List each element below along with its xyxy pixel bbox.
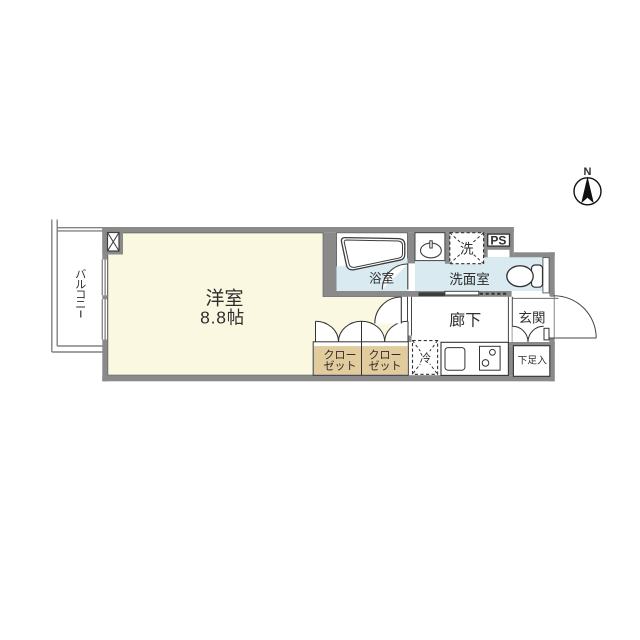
svg-text:ゼット: ゼット <box>324 360 357 373</box>
svg-text:下足入: 下足入 <box>518 354 548 366</box>
svg-text:洗: 洗 <box>460 241 474 256</box>
svg-text:洗面室: 洗面室 <box>449 271 490 287</box>
svg-text:8.8帖: 8.8帖 <box>200 307 245 327</box>
svg-text:玄関: 玄関 <box>519 310 546 326</box>
svg-text:廊下: 廊下 <box>449 312 481 330</box>
svg-text:浴室: 浴室 <box>369 271 394 286</box>
svg-text:クロー: クロー <box>324 349 357 362</box>
svg-text:N: N <box>584 166 592 178</box>
svg-text:クロー: クロー <box>369 349 402 362</box>
svg-text:ゼット: ゼット <box>369 360 402 373</box>
svg-text:冷: 冷 <box>420 352 432 365</box>
svg-text:洋室: 洋室 <box>205 288 243 310</box>
svg-text:ニ: ニ <box>75 299 86 311</box>
svg-text:PS: PS <box>490 233 506 247</box>
